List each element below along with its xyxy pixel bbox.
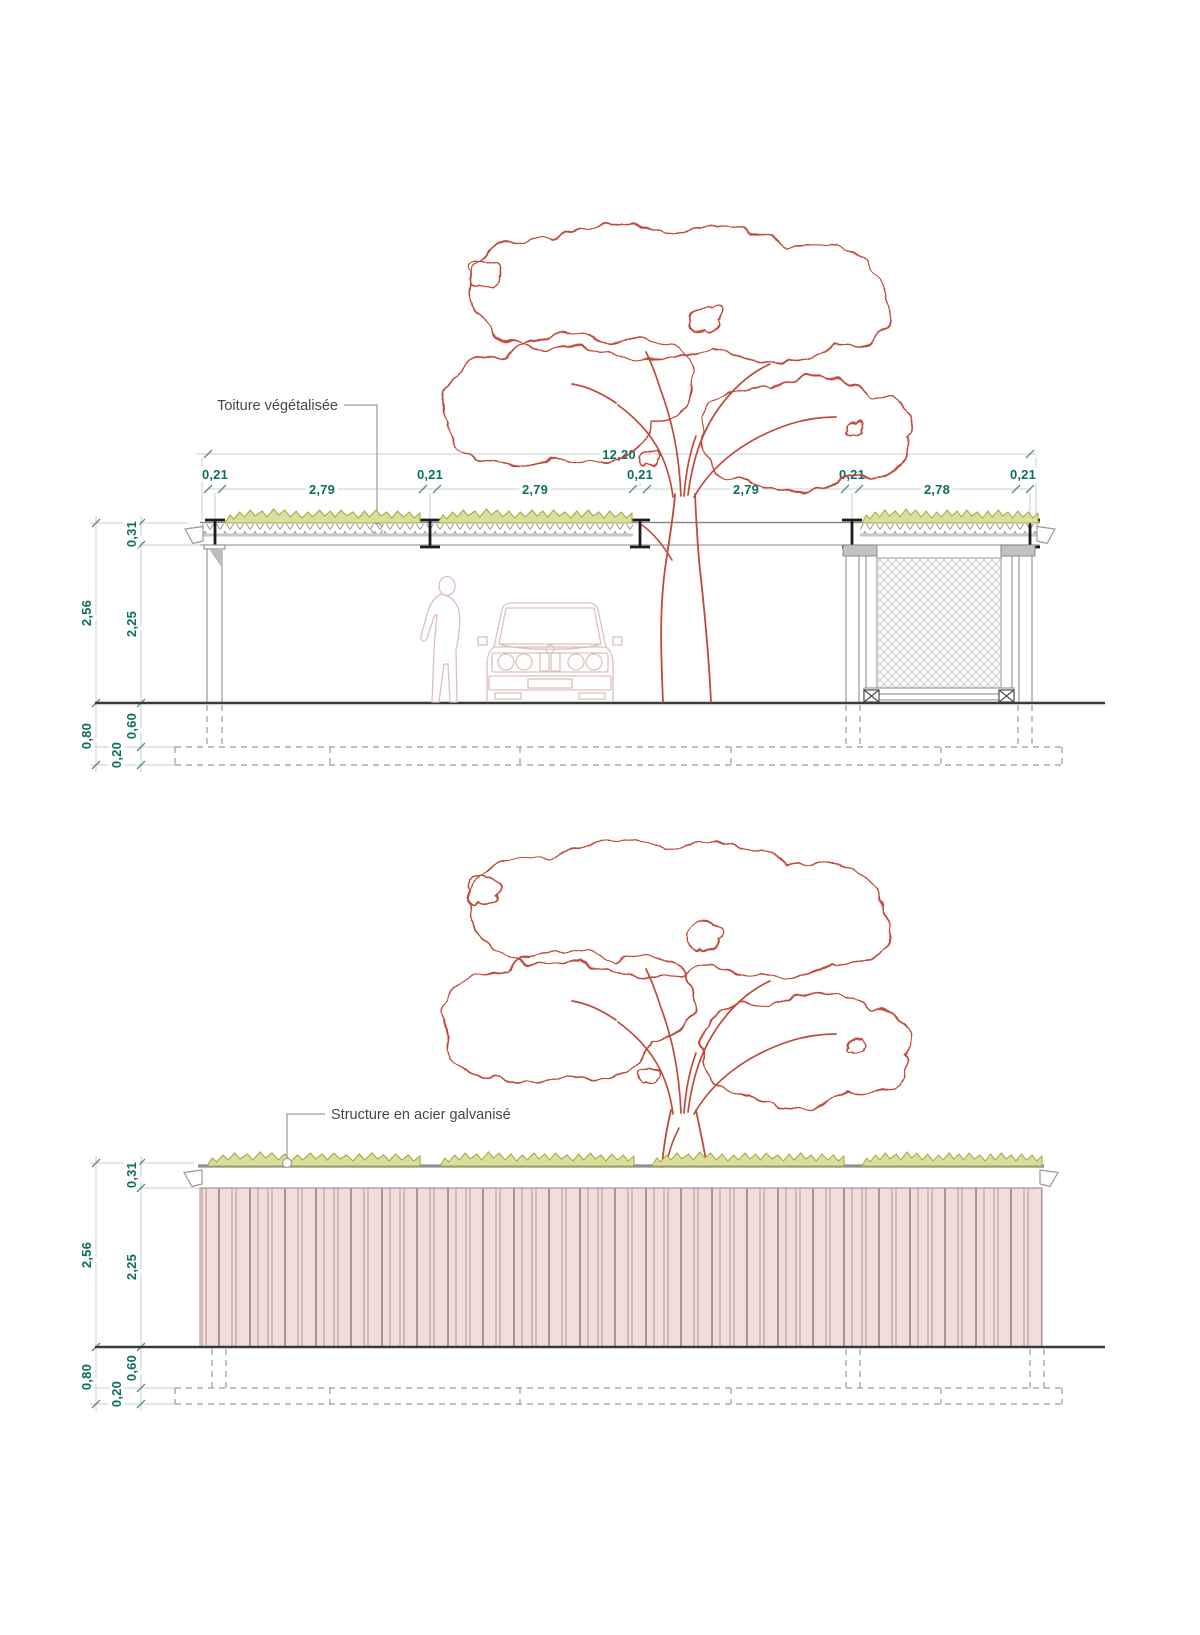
green-roof-vegetation [207,1152,1042,1166]
roof-deck [860,524,1038,534]
dim-chain-9: 0,21 [1010,467,1036,482]
annotation-leader-line [344,405,377,522]
dim-footing-thickness: 0,20 [109,1381,124,1407]
dim-clear-height: 2,25 [124,1254,139,1280]
annotation-leader-target [283,1159,292,1168]
elevation-ground-foundation [95,1347,1105,1404]
post-enclosure-left [846,556,859,703]
tree-section [443,224,912,702]
dim-foundation-upper: 0,60 [124,713,139,739]
dim-clear-height: 2,25 [124,611,139,637]
roof-beam-strip [860,534,1038,537]
roof-deck [202,524,633,534]
dim-foundation-total: 0,80 [79,1364,94,1390]
gutter-right [1040,1170,1058,1187]
gutter-right [1037,527,1055,544]
section-view: 12,20 0,21 2,79 0,21 2,79 0,21 2,79 0,21… [79,224,1105,772]
section-ground-foundation [95,703,1105,765]
green-roof-vegetation [225,509,1038,523]
dim-chain-6: 2,79 [733,482,759,497]
roof-beam-strip [202,534,633,537]
dim-foundation-upper: 0,60 [124,1355,139,1381]
section-vertical-dimensions: 2,56 0,80 0,31 2,25 0,60 0,20 [79,516,202,772]
post-left [204,545,225,703]
dim-chain-8: 2,78 [924,482,950,497]
dim-roof-thickness: 0,31 [124,1162,139,1188]
tree-trunk [661,494,675,702]
tree-elevation [443,841,912,1167]
carport-structure [185,509,1055,703]
dim-foundation-total: 0,80 [79,723,94,749]
architectural-drawing: 12,20 0,21 2,79 0,21 2,79 0,21 2,79 0,21… [0,0,1200,1635]
dim-footing-thickness: 0,20 [109,742,124,768]
dim-height-total: 2,56 [79,600,94,626]
roof-annotation-label: Toiture végétalisée [217,398,338,414]
annotation-leader-line [287,1114,325,1160]
gutter-left [185,527,203,544]
elevation-view: 2,56 0,80 0,31 2,25 0,60 0,20 [79,841,1105,1411]
structure-annotation-label: Structure en acier galvanisé [331,1107,511,1123]
dim-height-total: 2,56 [79,1242,94,1268]
dim-chain-5: 0,21 [627,467,653,482]
dim-chain-4: 2,79 [522,482,548,497]
gutter-left [184,1170,202,1187]
car-silhouette [478,603,622,702]
dim-chain-3: 0,21 [417,467,443,482]
dim-roof-thickness: 0,31 [124,521,139,547]
elevation-vertical-dimensions: 2,56 0,80 0,31 2,25 0,60 0,20 [79,1156,200,1411]
foundation-dashed [175,1349,1062,1404]
dim-chain-2: 2,79 [309,482,335,497]
post-enclosure-right [1019,556,1032,703]
elevation-structure [184,1152,1058,1347]
dim-total-width: 12,20 [602,447,636,462]
dim-chain-1: 0,21 [202,467,228,482]
mesh-enclosure [843,545,1035,703]
foundation-dashed [175,705,1062,765]
person-silhouette [421,577,460,703]
